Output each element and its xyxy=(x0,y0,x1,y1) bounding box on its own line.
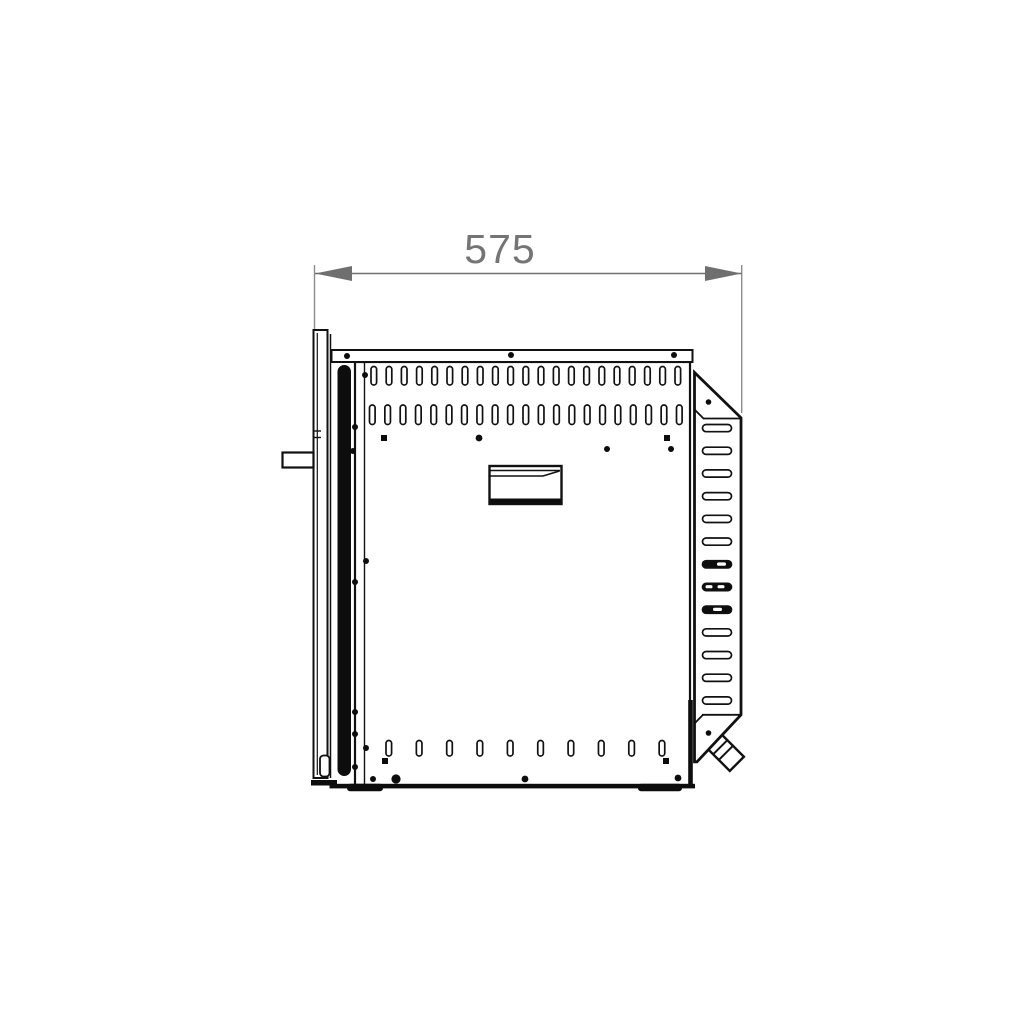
vent-slot xyxy=(492,405,498,425)
vent-slot xyxy=(661,405,667,425)
rivet-dot xyxy=(522,776,529,783)
rivet-dot xyxy=(352,709,358,715)
rivet-dot xyxy=(668,446,674,452)
rivet-dot xyxy=(363,558,369,564)
vent-slot xyxy=(659,741,665,757)
vent-slot xyxy=(477,405,483,425)
vent-slot-gap xyxy=(717,562,726,565)
door-outer-panel xyxy=(314,330,328,778)
door-gasket-seal xyxy=(338,365,352,776)
rating-plate-frame xyxy=(490,466,562,504)
vent-slot xyxy=(614,367,620,386)
vent-slot xyxy=(598,741,604,757)
oven-technical-diagram: 575 xyxy=(0,0,1024,1024)
vent-slot xyxy=(703,561,732,568)
square-screw-head xyxy=(381,435,387,441)
vent-slot xyxy=(646,405,652,425)
rivet-dot-large xyxy=(391,774,400,783)
rivet-dot xyxy=(604,446,610,452)
vent-slot xyxy=(477,741,483,757)
body-outline xyxy=(355,362,690,786)
vent-slot-gap xyxy=(718,585,725,588)
vent-slot xyxy=(703,425,732,432)
vent-slot-gap xyxy=(706,585,713,588)
rivet-dot xyxy=(508,352,514,358)
vent-slot xyxy=(660,367,666,386)
vent-slot xyxy=(554,405,560,425)
dimension-label: 575 xyxy=(464,226,535,272)
vent-slot xyxy=(703,493,732,500)
vent-slot xyxy=(569,405,575,425)
vent-slot xyxy=(400,405,406,425)
vent-slot xyxy=(568,741,574,757)
vent-slot xyxy=(703,447,732,454)
vent-slot xyxy=(416,405,422,425)
rivet-dot xyxy=(675,775,682,782)
vent-slot xyxy=(703,674,732,681)
vent-slot xyxy=(629,367,635,386)
rivet-dot xyxy=(362,372,368,378)
vent-slot xyxy=(703,629,732,636)
base-foot-pad-left xyxy=(347,784,383,791)
vent-slot xyxy=(447,367,453,386)
rivet-dot xyxy=(706,730,712,736)
square-screw-head xyxy=(382,758,388,764)
vent-slot xyxy=(630,405,636,425)
vent-slot xyxy=(703,652,732,659)
door-bottom-hinge-slot xyxy=(320,756,330,777)
rivet-dot xyxy=(671,352,677,358)
second-vent-row xyxy=(370,405,683,425)
vent-slot xyxy=(675,367,681,386)
vent-slot xyxy=(600,405,606,425)
rivet-dot xyxy=(370,776,376,782)
vent-slot xyxy=(538,405,544,425)
vent-slot xyxy=(432,367,438,386)
vent-slot xyxy=(523,405,529,425)
vent-slot xyxy=(703,515,732,522)
rating-plate xyxy=(490,466,562,504)
vent-slot xyxy=(462,367,468,386)
vent-slot xyxy=(416,741,422,757)
rivet-dot xyxy=(352,764,358,770)
rivet-dot xyxy=(352,579,358,585)
door-handle xyxy=(283,453,314,468)
vent-slot xyxy=(703,470,732,477)
vent-slot xyxy=(507,741,513,757)
rivet-dot xyxy=(352,424,358,430)
vent-slot-gap xyxy=(713,608,722,611)
vent-slot xyxy=(401,367,407,386)
rivet-dot xyxy=(476,435,483,442)
square-screw-head xyxy=(664,435,670,441)
vent-slot xyxy=(385,405,391,425)
rivet-dot xyxy=(706,399,712,405)
vent-slot xyxy=(386,367,392,386)
rating-plate-bottom-band xyxy=(491,499,561,504)
vent-slot xyxy=(371,367,377,386)
vent-slot xyxy=(370,405,376,425)
rivet-dot xyxy=(363,745,369,751)
vent-slot xyxy=(538,741,544,757)
vent-slot xyxy=(703,697,732,704)
vent-slot xyxy=(493,367,499,386)
vent-slot xyxy=(386,741,392,757)
top-vent-row xyxy=(371,367,681,386)
base-foot-pad-right xyxy=(638,784,682,791)
vent-slot xyxy=(417,367,423,386)
vent-slot xyxy=(431,405,437,425)
vent-slot xyxy=(447,741,453,757)
rivet-dot xyxy=(350,448,356,454)
vent-slot xyxy=(584,405,590,425)
vent-slot xyxy=(508,367,514,386)
vent-slot xyxy=(508,405,514,425)
vent-slot xyxy=(584,367,590,386)
rivet-dot xyxy=(344,353,350,359)
vent-slot xyxy=(553,367,559,386)
rivet-dot xyxy=(352,731,358,737)
vent-slot xyxy=(677,405,683,425)
vent-slot xyxy=(645,367,651,386)
vent-slot xyxy=(477,367,483,386)
vent-slot xyxy=(523,367,529,386)
vent-slot xyxy=(599,367,605,386)
square-screw-head xyxy=(663,758,669,764)
vent-slot xyxy=(629,741,635,757)
vent-slot xyxy=(446,405,452,425)
vent-slot xyxy=(703,538,732,545)
vent-slot xyxy=(538,367,544,386)
vent-slot xyxy=(569,367,575,386)
vent-slot xyxy=(462,405,468,425)
vent-slot xyxy=(615,405,621,425)
